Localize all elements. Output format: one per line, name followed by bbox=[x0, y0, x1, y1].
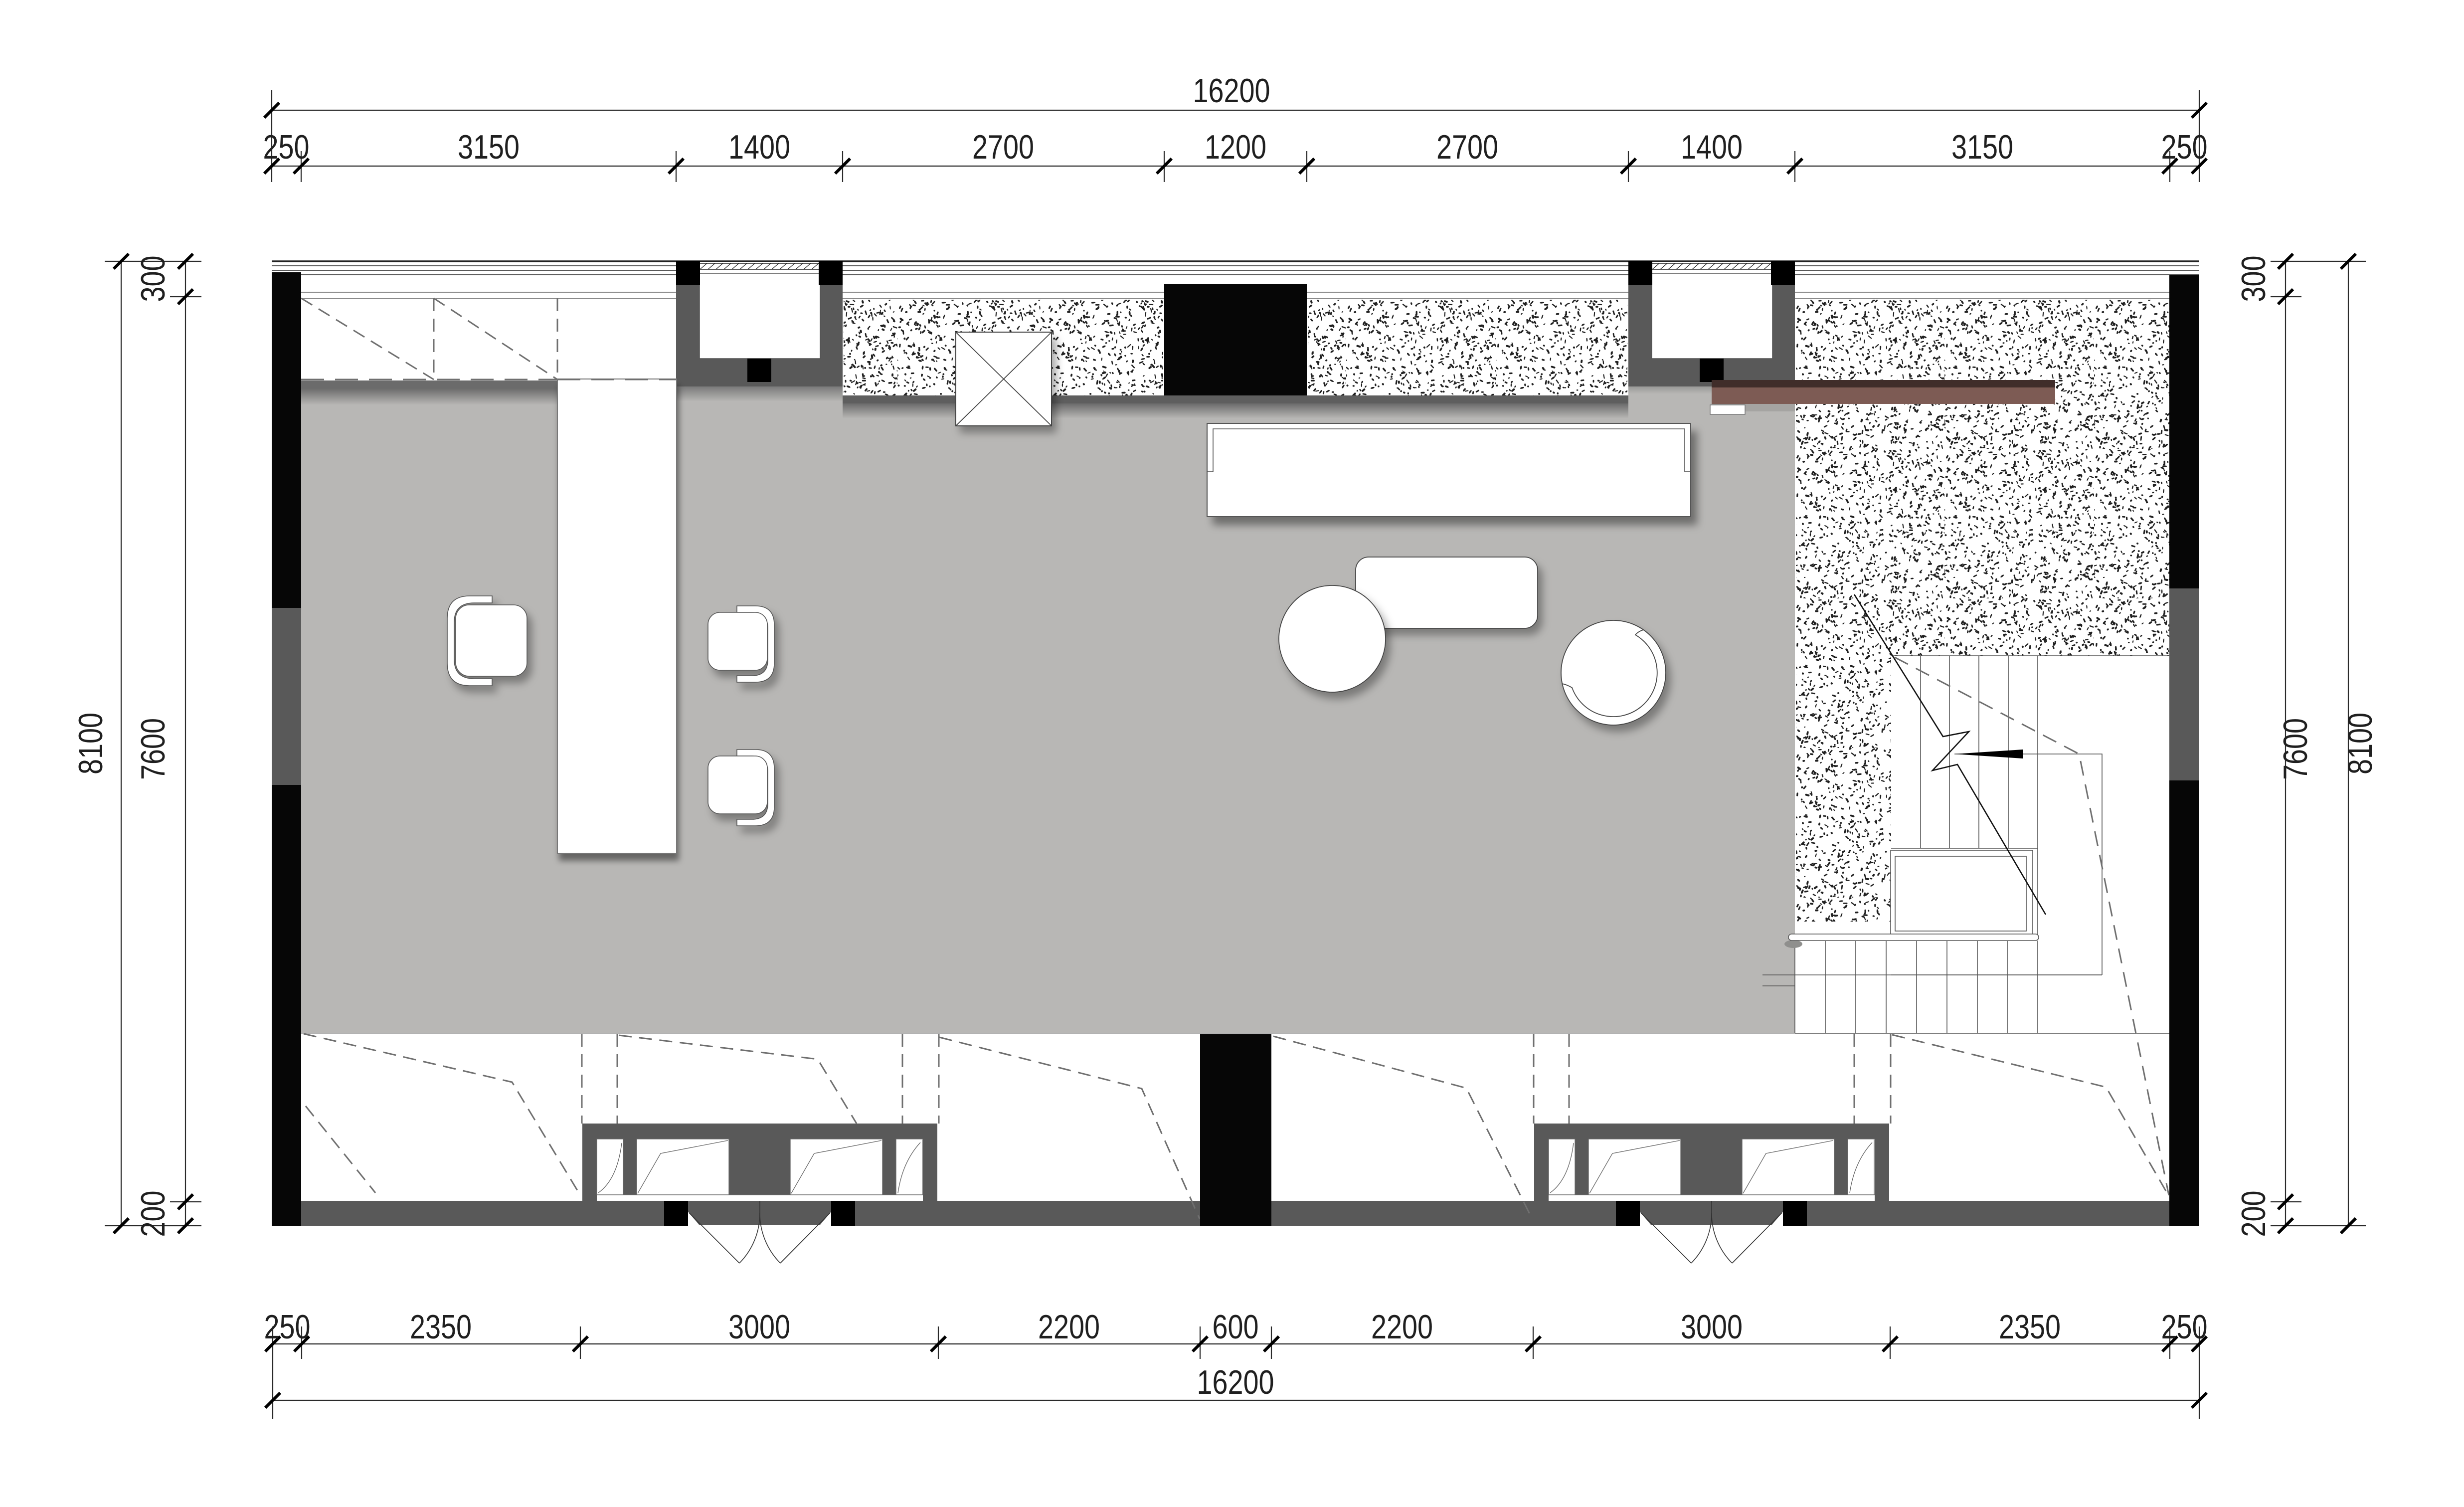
svg-text:300: 300 bbox=[2235, 256, 2273, 302]
svg-text:600: 600 bbox=[1213, 1308, 1259, 1346]
svg-text:3000: 3000 bbox=[1681, 1308, 1743, 1346]
svg-text:16200: 16200 bbox=[1197, 1363, 1274, 1401]
svg-text:2200: 2200 bbox=[1038, 1308, 1100, 1346]
svg-text:1400: 1400 bbox=[1681, 128, 1743, 166]
svg-text:2350: 2350 bbox=[1999, 1308, 2061, 1346]
svg-text:3000: 3000 bbox=[728, 1308, 790, 1346]
svg-text:200: 200 bbox=[134, 1191, 172, 1237]
svg-text:2350: 2350 bbox=[410, 1308, 472, 1346]
svg-text:2700: 2700 bbox=[1436, 128, 1498, 166]
svg-text:8100: 8100 bbox=[2341, 713, 2379, 774]
svg-text:3150: 3150 bbox=[1951, 128, 2013, 166]
svg-text:250: 250 bbox=[2161, 1308, 2208, 1346]
svg-text:250: 250 bbox=[2161, 128, 2208, 166]
svg-text:1400: 1400 bbox=[728, 128, 790, 166]
svg-text:3150: 3150 bbox=[458, 128, 520, 166]
svg-text:7600: 7600 bbox=[2277, 718, 2314, 780]
svg-text:300: 300 bbox=[134, 256, 172, 302]
svg-text:200: 200 bbox=[2235, 1191, 2273, 1237]
svg-text:8100: 8100 bbox=[72, 713, 110, 774]
svg-text:2200: 2200 bbox=[1371, 1308, 1433, 1346]
svg-text:1200: 1200 bbox=[1205, 128, 1266, 166]
svg-text:2700: 2700 bbox=[972, 128, 1034, 166]
svg-text:7600: 7600 bbox=[134, 718, 172, 780]
svg-text:250: 250 bbox=[264, 1308, 311, 1346]
svg-text:250: 250 bbox=[263, 128, 310, 166]
svg-text:16200: 16200 bbox=[1193, 72, 1270, 110]
